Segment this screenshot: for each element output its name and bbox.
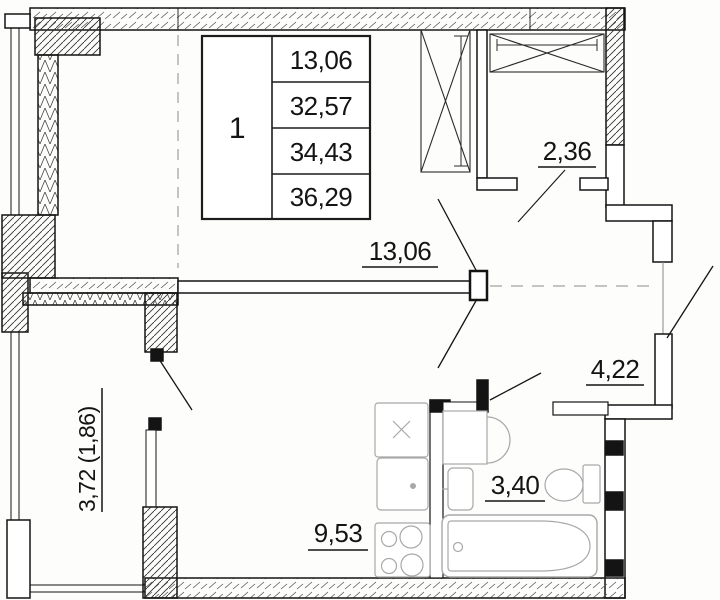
wall-kitchen-bath-divider xyxy=(430,400,443,578)
bath-door-post xyxy=(477,380,488,412)
room-label-bathroom: 3,40 xyxy=(485,470,545,501)
room-label-hall: 4,22 xyxy=(586,354,644,385)
wall-middle-thick-brick xyxy=(30,278,178,293)
riser-block-1 xyxy=(606,441,623,455)
balcony-door-hinge xyxy=(151,349,163,361)
wardrobe-divider-flange xyxy=(477,178,517,190)
wall-step-horizontal xyxy=(606,205,672,221)
room-label-wardrobe: 2,36 xyxy=(538,136,596,167)
hall-bottom-wall xyxy=(553,402,608,415)
kitchen-fixtures xyxy=(375,403,430,577)
washing-machine xyxy=(443,411,510,464)
hall-area-text: 4,22 xyxy=(591,354,640,384)
toilet xyxy=(545,465,600,503)
stove xyxy=(375,523,430,577)
riser-block-2 xyxy=(606,492,623,510)
legend-area-row-0: 13,06 xyxy=(290,45,353,75)
wall-entrance-lower xyxy=(655,334,672,408)
wardrobe-area-text: 2,36 xyxy=(543,136,592,166)
legend-area-row-3: 36,29 xyxy=(290,182,353,212)
wardrobe-leader xyxy=(518,170,565,222)
floor-plan-svg: 1 13,06 32,57 34,43 36,29 13,06 2,36 4,2… xyxy=(0,0,720,600)
room-label-living: 13,06 xyxy=(362,236,438,267)
kitchen-counter-unit xyxy=(375,403,428,457)
wall-middle-partition xyxy=(178,281,470,293)
pier-balcony-divider-bottom xyxy=(143,507,177,598)
legend-area-row-1: 32,57 xyxy=(290,91,353,121)
bathtub xyxy=(442,515,597,577)
wall-stub-wardrobe-right xyxy=(580,178,608,190)
legend-unit-number: 1 xyxy=(229,112,245,145)
room-label-balcony: 3,72 (1,86) xyxy=(74,388,102,512)
balcony-corner-post xyxy=(7,520,30,598)
balcony-divider-partition xyxy=(146,430,156,507)
living-opening-leader-bottom xyxy=(438,299,477,368)
wall-jog-hall xyxy=(605,405,672,419)
legend-area-row-2: 34,43 xyxy=(290,137,353,167)
balcony-door-swing xyxy=(157,356,192,410)
balcony-area-text: 3,72 (1,86) xyxy=(74,406,100,512)
bath-door-swing xyxy=(490,373,541,400)
pier-living-balcony-corner xyxy=(2,215,55,278)
floor-plan-page: 1 13,06 32,57 34,43 36,29 13,06 2,36 4,2… xyxy=(0,0,720,600)
entrance-door-post-top xyxy=(653,221,672,262)
wall-middle-end-column xyxy=(470,271,487,300)
closet-box-wide xyxy=(490,34,604,72)
closet-box-tall xyxy=(421,30,470,172)
living-opening-leader-top xyxy=(438,199,477,272)
wall-right-mid xyxy=(606,145,624,207)
wall-top xyxy=(30,8,625,30)
bathroom-area-text: 3,40 xyxy=(491,470,540,500)
room-label-kitchen: 9,53 xyxy=(308,518,368,550)
pier-balcony-divider-top xyxy=(145,293,177,352)
window-cap-topleft xyxy=(5,14,30,28)
wall-right-upper xyxy=(606,8,624,145)
bath-sink xyxy=(442,468,473,510)
riser-block-3 xyxy=(606,560,623,576)
wardrobe-divider-wall xyxy=(477,30,487,178)
wall-bottom xyxy=(145,578,625,598)
entrance-door-swing xyxy=(667,266,713,338)
kitchen-area-text: 9,53 xyxy=(314,518,363,548)
balcony-door-frame xyxy=(149,418,161,430)
living-area-text: 13,06 xyxy=(369,236,432,266)
kitchen-sink xyxy=(377,458,428,510)
insulation-strip-left xyxy=(38,55,58,215)
legend-table: 1 13,06 32,57 34,43 36,29 xyxy=(202,36,370,219)
pier-top-left xyxy=(35,18,100,55)
